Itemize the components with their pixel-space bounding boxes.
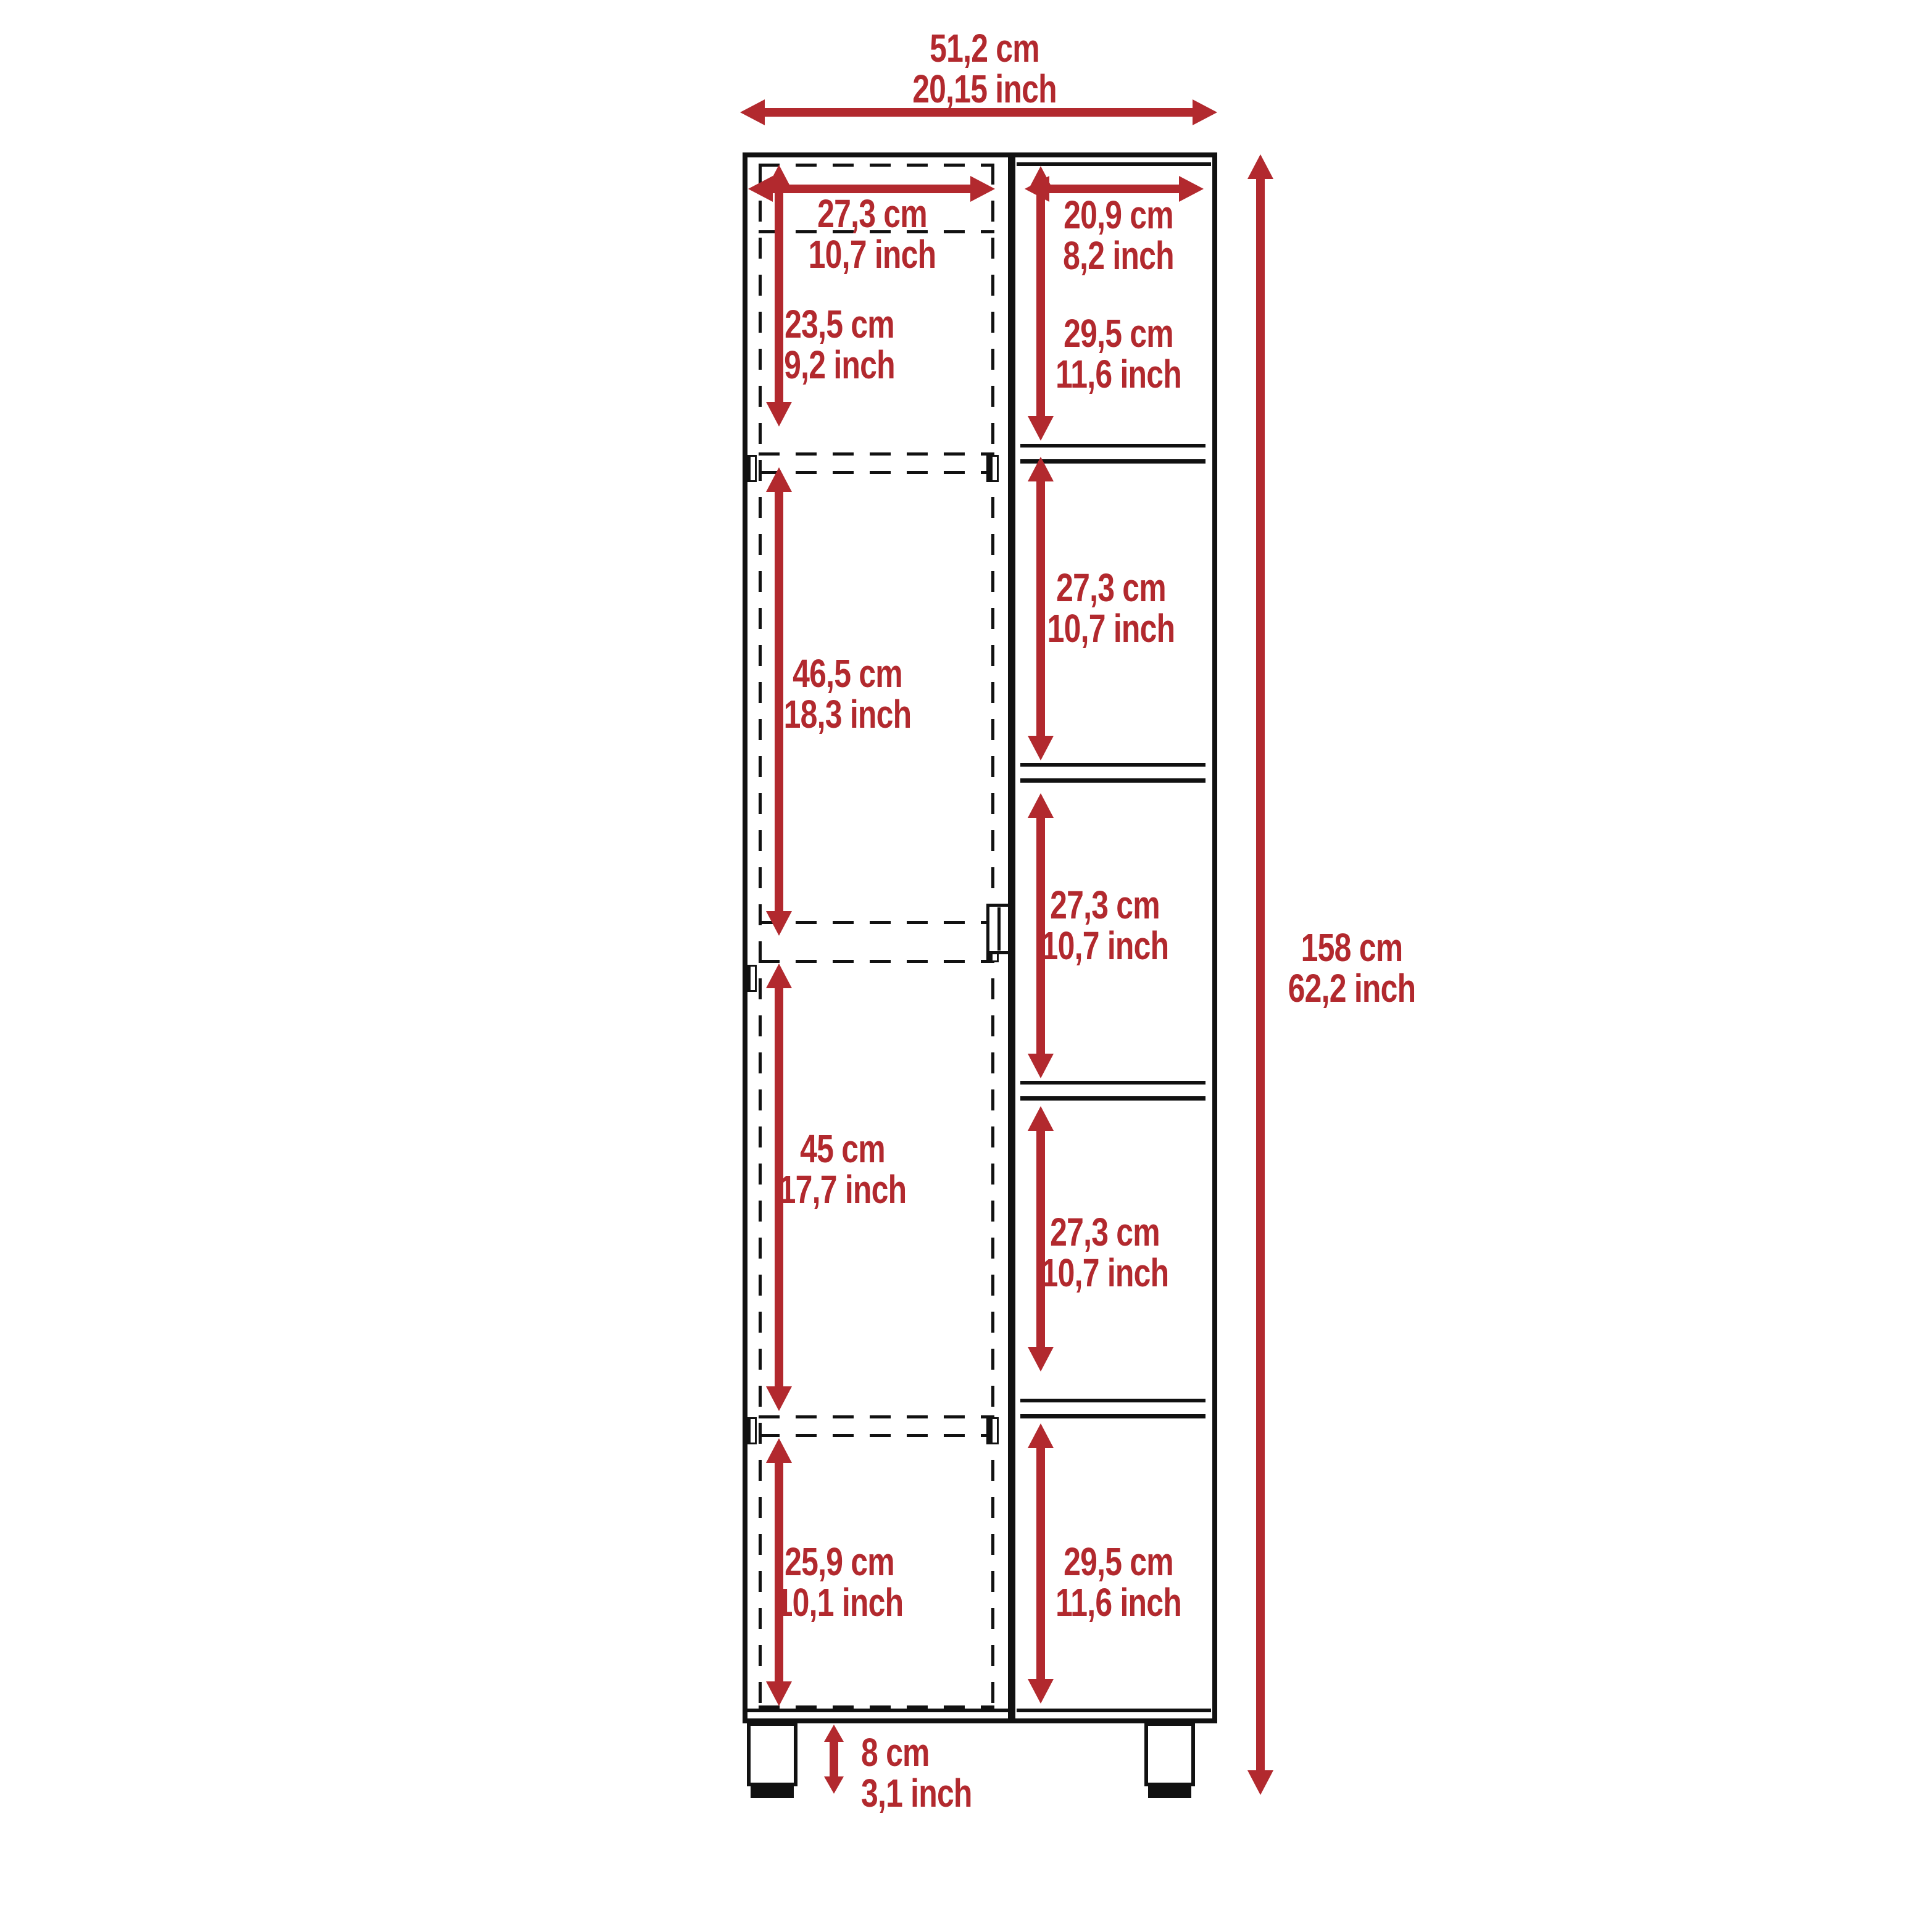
leg-height-inch: 3,1 inch <box>861 1773 1073 1813</box>
hinge-icon <box>744 1417 757 1444</box>
label-overall-width: 51,2 cm 20,15 inch <box>840 28 1129 109</box>
hinge-icon <box>986 1417 999 1444</box>
label-shelf-cell-5: 29,5 cm 11,6 inch <box>974 1541 1263 1623</box>
door-width-cm: 27,3 cm <box>728 193 1017 234</box>
label-shelf-cell-3: 27,3 cm 10,7 inch <box>960 885 1249 966</box>
shelf-divider-2 <box>1020 763 1205 783</box>
door-dashed-divider-2b <box>759 960 994 963</box>
overall-width-cm: 51,2 cm <box>840 28 1129 69</box>
door-dashed-divider-3b <box>759 1434 994 1437</box>
leg-foot-left <box>751 1783 794 1798</box>
dimension-diagram: 51,2 cm 20,15 inch 27,3 cm 10,7 inch 20,… <box>0 0 1932 1932</box>
label-overall-height: 158 cm 62,2 inch <box>1207 927 1496 1009</box>
door-dashed-bottom <box>759 1705 994 1709</box>
hinge-icon <box>986 455 999 482</box>
label-door-width: 27,3 cm 10,7 inch <box>728 193 1017 275</box>
label-door-section-3: 45 cm 17,7 inch <box>698 1128 987 1210</box>
cabinet-leg-left <box>747 1722 797 1786</box>
door-dashed-top <box>759 164 994 167</box>
overall-height-inch: 62,2 inch <box>1207 968 1496 1009</box>
label-door-section-1: 23,5 cm 9,2 inch <box>695 304 984 385</box>
hinge-icon <box>744 965 757 992</box>
door-dashed-edge-left <box>759 164 762 1709</box>
hinge-icon <box>744 455 757 482</box>
shelf-width-cm: 20,9 cm <box>974 194 1263 235</box>
door-dashed-divider-3a <box>759 1415 994 1418</box>
plinth-line-right <box>1017 1709 1211 1712</box>
arrow-shelf-width <box>1049 185 1179 193</box>
label-shelf-cell-2: 27,3 cm 10,7 inch <box>967 567 1255 649</box>
label-shelf-cell-4: 27,3 cm 10,7 inch <box>960 1212 1249 1293</box>
door-dashed-divider-2a <box>759 921 994 924</box>
shelf-divider-4 <box>1020 1399 1205 1418</box>
overall-width-inch: 20,15 inch <box>840 69 1129 109</box>
arrow-leg-height <box>830 1742 838 1776</box>
shelf-width-inch: 8,2 inch <box>974 235 1263 276</box>
label-leg-height: 8 cm 3,1 inch <box>861 1732 1073 1813</box>
cabinet-leg-right <box>1144 1722 1195 1786</box>
door-dashed-divider-1a <box>759 452 994 456</box>
leg-foot-right <box>1148 1783 1191 1798</box>
label-shelf-width: 20,9 cm 8,2 inch <box>974 194 1263 276</box>
leg-height-cm: 8 cm <box>861 1732 1073 1773</box>
label-shelf-cell-1: 29,5 cm 11,6 inch <box>974 313 1263 394</box>
plinth-line-left <box>747 1709 1008 1712</box>
label-door-section-4: 25,9 cm 10,1 inch <box>695 1541 984 1623</box>
door-width-inch: 10,7 inch <box>728 234 1017 275</box>
door-dashed-divider-1b <box>759 471 994 474</box>
shelf-divider-3 <box>1020 1081 1205 1101</box>
label-door-section-2: 46,5 cm 18,3 inch <box>703 653 992 735</box>
overall-height-cm: 158 cm <box>1207 927 1496 968</box>
